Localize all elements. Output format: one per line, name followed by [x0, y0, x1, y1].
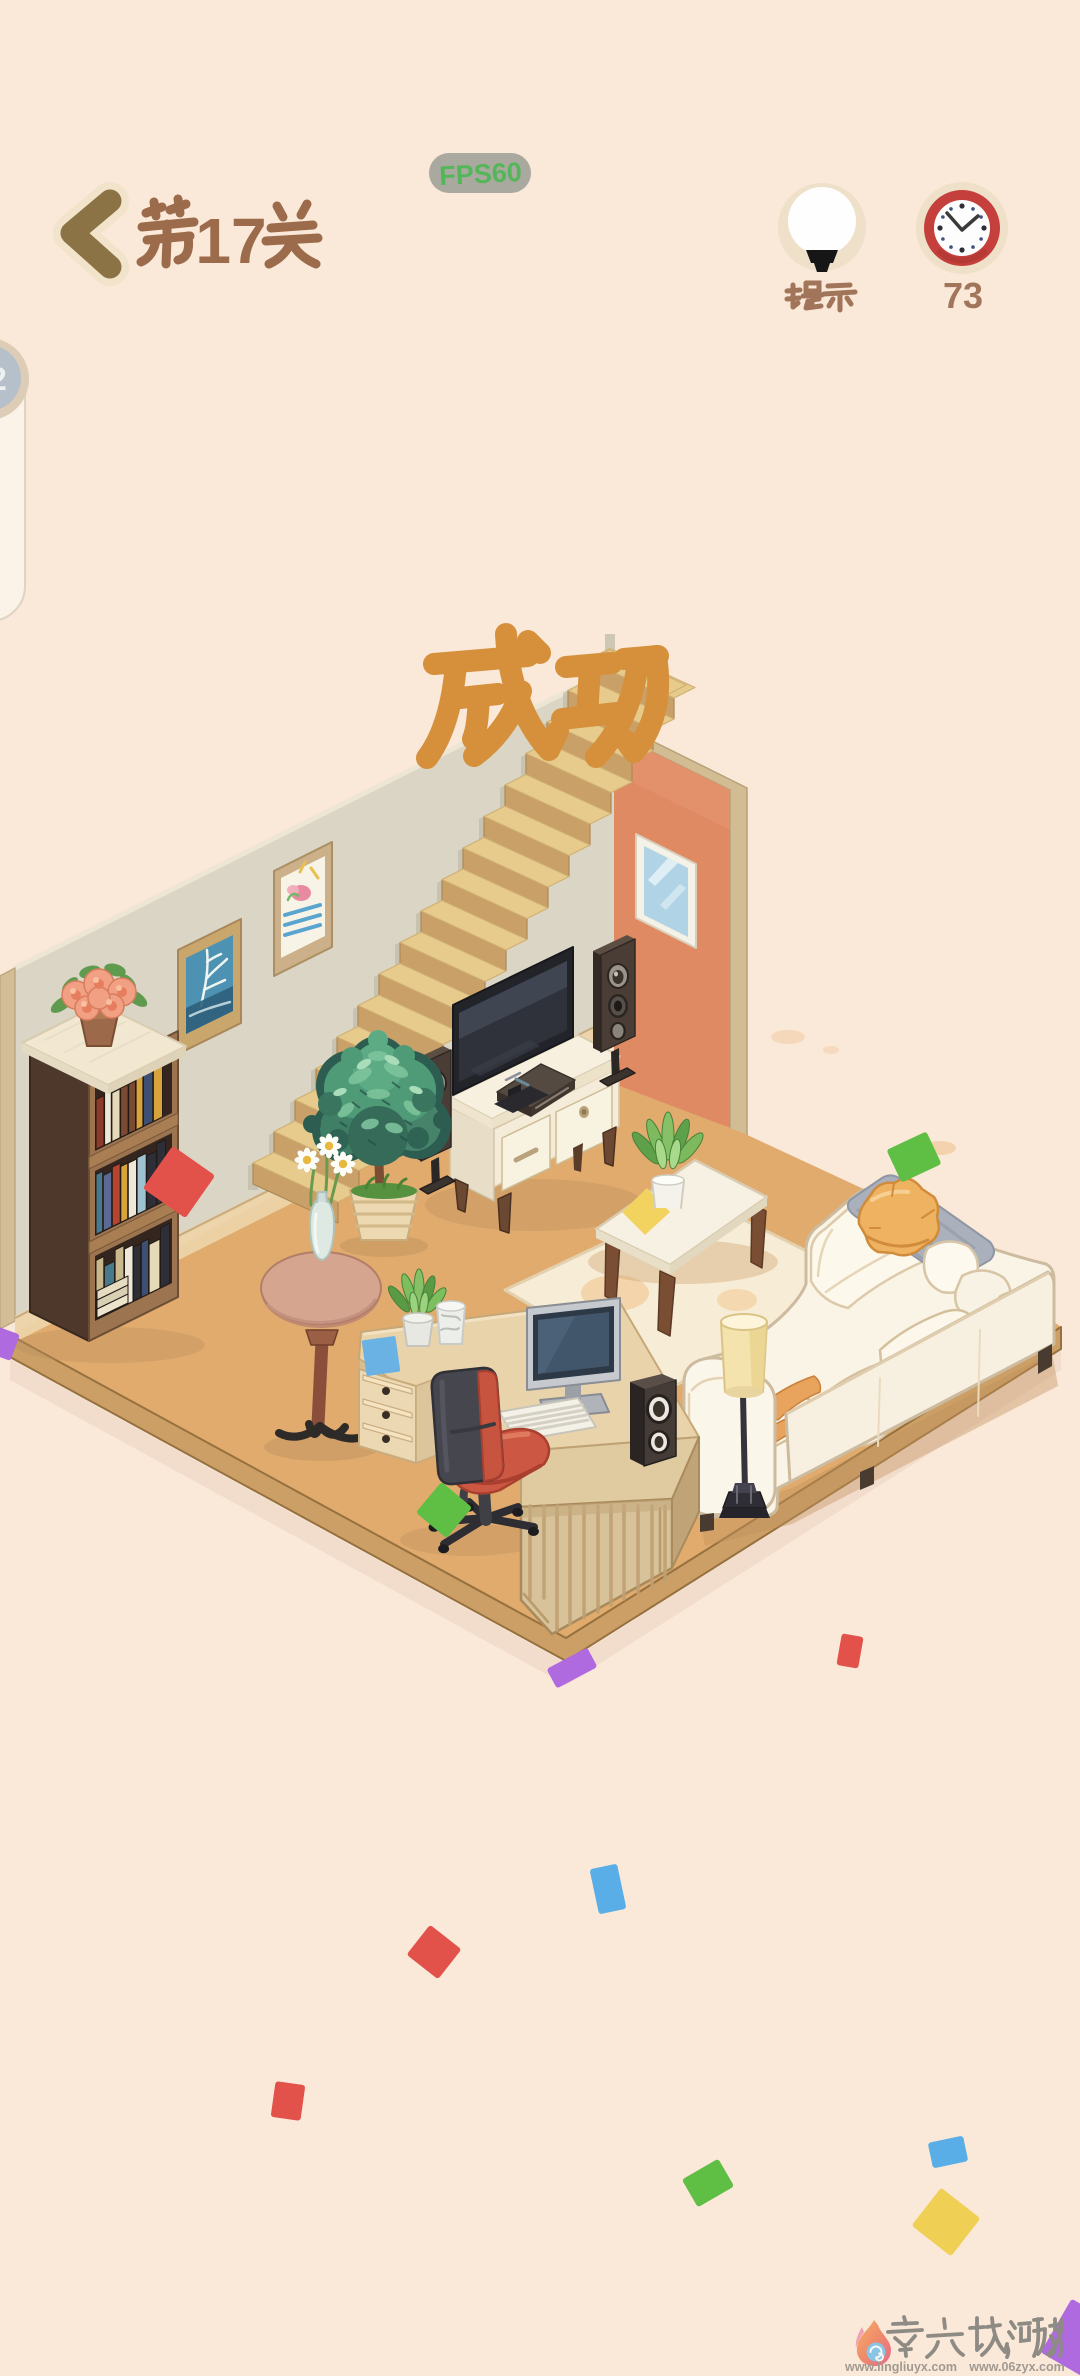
- svg-text:www.06zyx.com: www.06zyx.com: [968, 2360, 1064, 2374]
- svg-text:FPS60: FPS60: [439, 157, 523, 191]
- svg-text:22: 22: [0, 361, 7, 397]
- svg-text:www.lingliuyx.com: www.lingliuyx.com: [844, 2360, 957, 2374]
- svg-text:17: 17: [195, 205, 266, 277]
- svg-text:73: 73: [943, 275, 983, 316]
